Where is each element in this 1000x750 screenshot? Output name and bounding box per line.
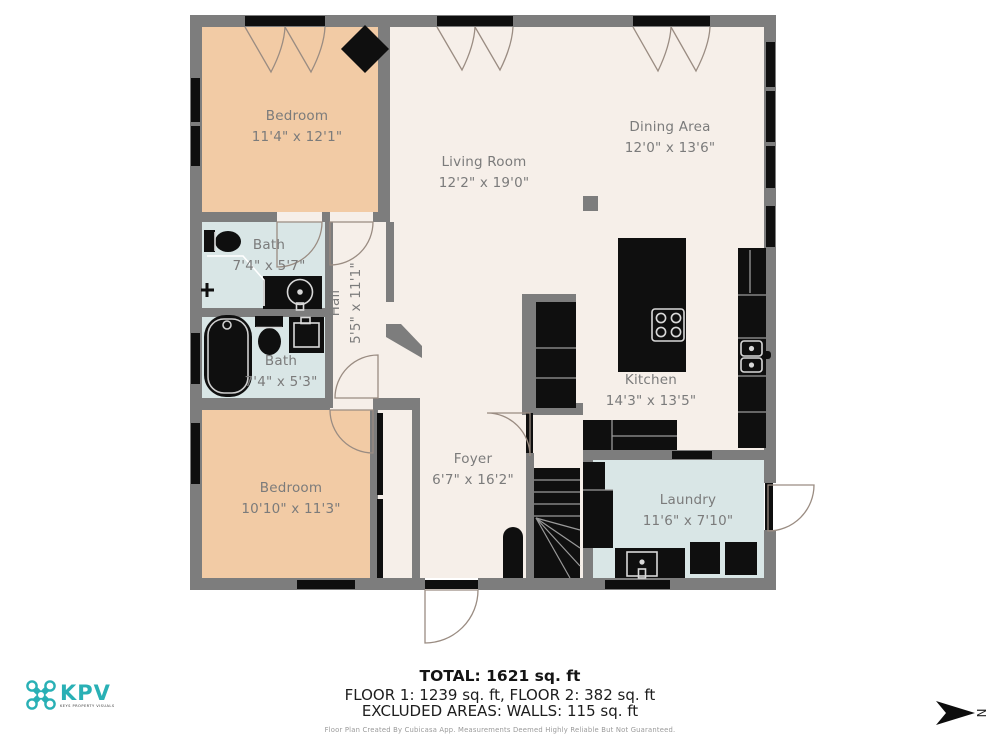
laundry-cabinet-a bbox=[583, 462, 605, 490]
kitchen-counter-bottom bbox=[583, 420, 677, 450]
window-dining-top bbox=[633, 16, 710, 26]
north-label: N bbox=[974, 709, 988, 718]
disclaimer-text: Floor Plan Created By Cubicasa App. Meas… bbox=[0, 726, 1000, 734]
kitchen-island bbox=[618, 238, 686, 372]
room-label-bedroom-1: Bedroom 11'4" x 12'1" bbox=[252, 106, 343, 148]
kitchen-faucet bbox=[759, 351, 771, 359]
window-kitchen-right bbox=[766, 206, 775, 247]
dryer bbox=[725, 542, 757, 575]
laundry-sink-counter bbox=[615, 548, 685, 578]
window-laundry-bottom bbox=[605, 580, 670, 589]
front-door-leaf bbox=[425, 580, 478, 589]
window-bedroom2-bottom bbox=[297, 580, 355, 589]
kitchen-counter-right bbox=[738, 248, 766, 448]
excluded-areas-text: EXCLUDED AREAS: WALLS: 115 sq. ft bbox=[0, 702, 1000, 720]
stair-newel bbox=[503, 527, 523, 578]
room-dims: 10'10" x 11'3" bbox=[241, 499, 340, 520]
north-arrow-icon: N bbox=[928, 698, 990, 730]
closet-sliding-door-a bbox=[377, 413, 383, 495]
support-column bbox=[583, 196, 598, 211]
room-name: Bath bbox=[233, 235, 306, 256]
room-label-laundry: Laundry 11'6" x 7'10" bbox=[643, 490, 734, 532]
drone-logo-icon bbox=[26, 680, 56, 710]
floor-plan-page: Bedroom 11'4" x 12'1" Living Room 12'2" … bbox=[0, 0, 1000, 750]
room-label-dining-area: Dining Area 12'0" x 13'6" bbox=[625, 117, 716, 159]
wall-closet-right bbox=[412, 398, 420, 578]
room-name: Bedroom bbox=[241, 478, 340, 499]
room-label-bedroom-2: Bedroom 10'10" x 11'3" bbox=[241, 478, 340, 520]
room-dims: 5'5" x 11'1" bbox=[346, 262, 367, 344]
laundry-door-leaf bbox=[765, 483, 773, 530]
room-name: Foyer bbox=[432, 449, 514, 470]
room-label-bath-2: Bath 7'4" x 5'3" bbox=[245, 351, 318, 393]
kpv-logo: KPV KEYS PROPERTY VISUALS bbox=[26, 680, 115, 710]
staircase bbox=[534, 468, 580, 578]
pantry-cabinets bbox=[536, 302, 576, 408]
room-label-living-room: Living Room 12'2" x 19'0" bbox=[439, 152, 530, 194]
room-dims: 6'7" x 16'2" bbox=[432, 470, 514, 491]
window-bedroom1-left-a bbox=[191, 78, 200, 122]
room-label-kitchen: Kitchen 14'3" x 13'5" bbox=[606, 370, 697, 412]
window-dining-right-a bbox=[766, 42, 775, 87]
room-label-hall: Hall 5'5" x 11'1" bbox=[325, 262, 367, 344]
window-bedroom2-left bbox=[191, 423, 200, 484]
wall-pantry-left bbox=[522, 294, 536, 413]
window-bedroom1-top bbox=[245, 16, 325, 26]
room-name: Bedroom bbox=[252, 106, 343, 127]
toilet-1-tank bbox=[204, 230, 215, 252]
washer bbox=[690, 542, 720, 574]
room-dims: 7'4" x 5'3" bbox=[245, 372, 318, 393]
wall-bedroom1-bottom-b bbox=[322, 212, 330, 222]
logo-tagline-text: KEYS PROPERTY VISUALS bbox=[60, 704, 115, 708]
room-dims: 14'3" x 13'5" bbox=[606, 391, 697, 412]
room-dims: 12'0" x 13'6" bbox=[625, 138, 716, 159]
foyer-door-leaf bbox=[526, 413, 533, 453]
window-dining-right-b bbox=[766, 91, 775, 142]
wall-pantry-cap bbox=[536, 294, 576, 302]
window-living-top bbox=[437, 16, 513, 26]
logo-brand-text: KPV bbox=[60, 683, 115, 703]
room-name: Hall bbox=[325, 262, 346, 344]
room-name: Kitchen bbox=[606, 370, 697, 391]
wall-outer-right-lower bbox=[764, 530, 776, 590]
room-name: Bath bbox=[245, 351, 318, 372]
window-bath2-left bbox=[191, 333, 200, 384]
room-name: Living Room bbox=[439, 152, 530, 173]
wall-hall-right bbox=[386, 222, 394, 302]
room-name: Dining Area bbox=[625, 117, 716, 138]
window-dining-right-c bbox=[766, 146, 775, 188]
wall-stairs-left bbox=[526, 453, 534, 578]
laundry-cabinet-b bbox=[583, 490, 613, 548]
room-name: Laundry bbox=[643, 490, 734, 511]
total-area-text: TOTAL: 1621 sq. ft bbox=[0, 667, 1000, 685]
toilet-2-tank bbox=[255, 316, 283, 327]
window-bedroom1-left-b bbox=[191, 126, 200, 166]
room-dims: 11'6" x 7'10" bbox=[643, 511, 734, 532]
room-label-foyer: Foyer 6'7" x 16'2" bbox=[432, 449, 514, 491]
room-dims: 11'4" x 12'1" bbox=[252, 127, 343, 148]
vanity-sink-2 bbox=[289, 317, 324, 353]
window-laundry-interior bbox=[672, 451, 712, 459]
closet-sliding-door-b bbox=[377, 499, 383, 578]
vanity-sink-1 bbox=[263, 276, 322, 309]
room-dims: 7'4" x 5'7" bbox=[233, 256, 306, 277]
wall-bedroom2-top-a bbox=[190, 398, 330, 410]
wall-bedroom1-bottom-a bbox=[190, 212, 277, 222]
room-label-bath-1: Bath 7'4" x 5'7" bbox=[233, 235, 306, 277]
wall-bedroom1-bottom-c bbox=[373, 212, 390, 222]
room-dims: 12'2" x 19'0" bbox=[439, 173, 530, 194]
